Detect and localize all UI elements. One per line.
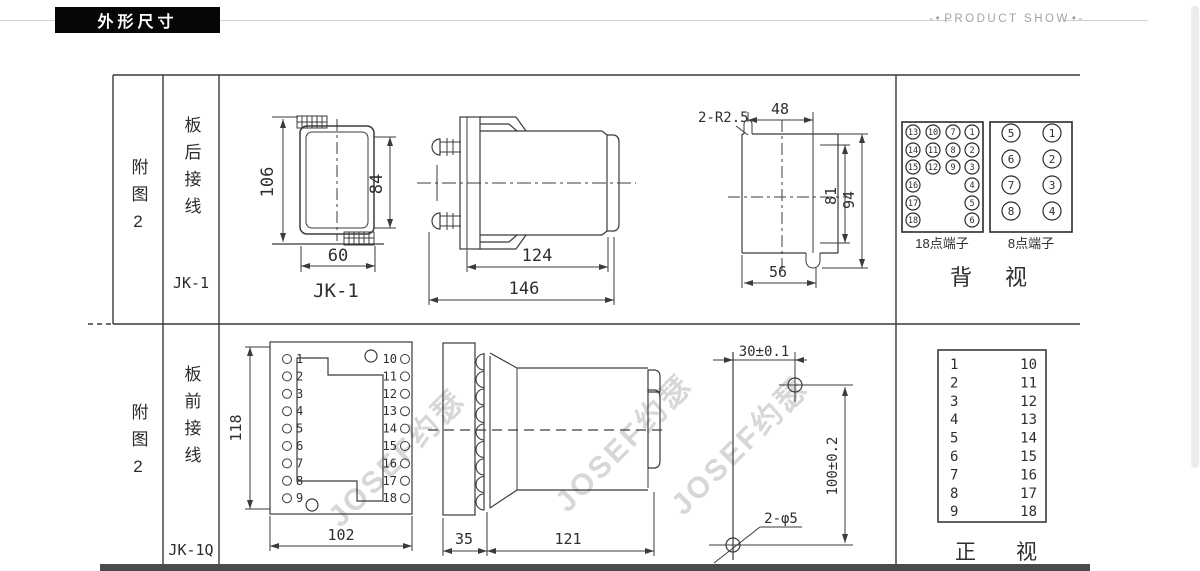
terminal-number: 7 (950, 128, 955, 138)
terminal-number: 7 (1008, 179, 1015, 192)
terminal-number: 3 (969, 163, 974, 173)
dim-84-text: 84 (367, 174, 387, 194)
dim-35-text: 35 (455, 530, 473, 548)
jk1-side-screw-bottom (432, 213, 440, 229)
dim-124-text: 124 (522, 246, 553, 266)
terminal-number: 1 (296, 352, 303, 366)
terminal-number: 7 (296, 456, 303, 470)
jk1q-side-end-cap-top (648, 370, 660, 392)
table-number: 5 (950, 431, 958, 447)
jk1q-side-screws (476, 353, 490, 510)
terminal-number: 5 (1008, 127, 1015, 140)
terminal-number: 10 (383, 352, 397, 366)
terminal-number: 12 (928, 163, 938, 173)
dim-100-text: 100±0.2 (825, 436, 841, 495)
table-number: 6 (950, 449, 958, 465)
jk1q-front-step-outline (297, 358, 383, 501)
terminal-number: 4 (969, 181, 974, 191)
terminal-number: 3 (296, 387, 303, 401)
jk1q-side-front-panel (443, 343, 475, 515)
terminal-number: 5 (969, 199, 974, 209)
jk1q-front-hole-bottom (306, 499, 318, 511)
table-number: 17 (1020, 486, 1037, 502)
drawing-canvas: 106 84 60 JK-1 (0, 0, 1200, 571)
terminal-number: 17 (908, 199, 918, 209)
jk1-side-bottom-tab (480, 235, 526, 249)
front-table-numbers: 1 2 3 4 5 6 7 8 9 10 11 12 13 14 15 16 1… (950, 357, 1037, 520)
terminal-number: 3 (1049, 179, 1056, 192)
table-number: 7 (950, 467, 958, 483)
drill-holes-label: 2-φ5 (764, 511, 798, 527)
terminal-number: 11 (383, 369, 397, 383)
terminal-number: 8 (296, 474, 303, 488)
terminal18-label: 18点端子 (915, 236, 968, 251)
table-number: 1 (950, 357, 958, 373)
terminal-number: 14 (908, 146, 918, 156)
page: 外形尺寸 -• PRODUCT SHOW •- 附图2 板后接线 JK-1 附图… (0, 0, 1200, 571)
terminal-number: 6 (1008, 153, 1015, 166)
terminal-number: 4 (296, 404, 303, 418)
jk1-side-top-tab (480, 117, 526, 131)
terminal-number: 9 (296, 491, 303, 505)
terminal-number: 9 (950, 163, 955, 173)
terminal-number: 5 (296, 422, 303, 436)
terminal-number: 8 (1008, 205, 1015, 218)
terminal-number: 13 (908, 128, 918, 138)
terminal-number: 16 (383, 456, 397, 470)
terminal-number: 1 (1049, 127, 1056, 140)
terminal8-label: 8点端子 (1008, 236, 1054, 251)
terminal-number: 6 (969, 216, 974, 226)
table-number: 11 (1020, 375, 1037, 391)
terminal-number: 4 (1049, 205, 1056, 218)
table-number: 16 (1020, 467, 1037, 483)
table-number: 8 (950, 486, 958, 502)
dim-48-text: 48 (771, 100, 789, 118)
table-number: 12 (1020, 394, 1037, 410)
dim-106-text: 106 (258, 167, 278, 198)
jk1q-side-drawing (428, 343, 662, 556)
terminal-number: 2 (296, 369, 303, 383)
terminal18-circles (906, 125, 979, 227)
terminal-number: 14 (383, 422, 397, 436)
dim-94-text: 94 (840, 191, 858, 209)
terminal-number: 1 (969, 128, 974, 138)
rear-view-title: 背视 (950, 265, 1060, 290)
table-number: 4 (950, 412, 958, 428)
table-number: 3 (950, 394, 958, 410)
jk1-front-label: JK-1 (313, 280, 359, 302)
terminal-number: 18 (383, 491, 397, 505)
terminal-number: 15 (908, 163, 918, 173)
jk1-front-bottom-hatch-block (344, 232, 374, 245)
jk1q-front-hole-top (365, 350, 377, 362)
dim-118-text: 118 (227, 414, 245, 441)
jk1-side-screw-shafts (440, 138, 461, 230)
jk1-side-drawing (417, 117, 636, 305)
table-number: 13 (1020, 412, 1037, 428)
terminal-number: 8 (950, 146, 955, 156)
dim-60-text: 60 (328, 246, 348, 266)
dim-56-text: 56 (769, 263, 787, 281)
table-number: 9 (950, 504, 958, 520)
table-number: 14 (1020, 431, 1037, 447)
table-number: 15 (1020, 449, 1037, 465)
terminal-number: 15 (383, 439, 397, 453)
table-number: 18 (1020, 504, 1037, 520)
dim-48 (748, 112, 813, 253)
front-view-title: 正视 (955, 541, 1077, 564)
terminal18-numbers: 13 14 15 16 17 18 10 11 12 7 8 9 1 2 3 4… (908, 128, 975, 226)
jk1-side-screw-top (432, 139, 440, 155)
terminal-number: 11 (928, 146, 938, 156)
terminal-number: 16 (908, 181, 918, 191)
terminal-number: 10 (928, 128, 938, 138)
cutout-slot-label: 2-R2.5 (698, 110, 749, 126)
cutout-bottom-slot (806, 253, 820, 268)
terminal-number: 18 (908, 216, 918, 226)
table-number: 2 (950, 375, 958, 391)
terminal-number: 13 (383, 404, 397, 418)
dim-30-text: 30±0.1 (739, 344, 790, 360)
terminal-number: 17 (383, 474, 397, 488)
bottom-section-bar (100, 564, 1090, 571)
dim-146-text: 146 (509, 279, 540, 299)
terminal-number: 2 (1049, 153, 1056, 166)
table-number: 10 (1020, 357, 1037, 373)
dim-118 (245, 347, 270, 509)
dim-102-text: 102 (327, 526, 354, 544)
terminal-number: 2 (969, 146, 974, 156)
jk1q-front-left-terminals (283, 355, 292, 503)
dim-81-text: 81 (822, 187, 840, 205)
terminal-number: 12 (383, 387, 397, 401)
dim-121-text: 121 (554, 530, 581, 548)
jk1q-front-right-terminals (401, 355, 410, 503)
jk1q-side-end-cap (648, 390, 660, 468)
terminal-number: 6 (296, 439, 303, 453)
terminal8-block (990, 122, 1072, 232)
